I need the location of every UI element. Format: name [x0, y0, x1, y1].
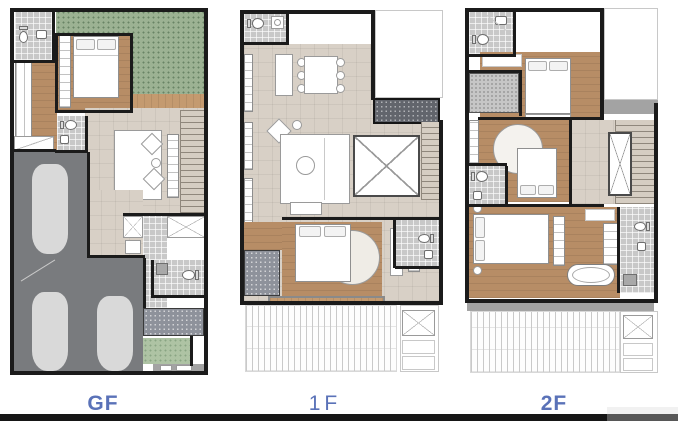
gf-counter [123, 216, 143, 238]
2f-sink-icon [473, 191, 482, 200]
1f-hall-wood [244, 222, 282, 250]
wall [467, 54, 516, 57]
wall [123, 213, 207, 216]
2f-dressing-mat [469, 73, 519, 113]
wall [600, 8, 604, 118]
wall [439, 120, 443, 305]
gf-car-icon [97, 296, 133, 371]
footer-light-tab [607, 407, 678, 414]
gf-toilet-tank-icon [195, 270, 199, 280]
wall [151, 260, 154, 298]
wall [519, 70, 522, 116]
2f-pergola-deck [470, 311, 620, 373]
wall [654, 103, 658, 303]
2f-toilet-tank-icon [646, 222, 650, 231]
wall [467, 70, 519, 73]
floor-label-gf: GF [78, 392, 128, 416]
wall [14, 149, 56, 152]
wall [465, 299, 658, 303]
2f-deck-edge [467, 303, 654, 311]
gf-garden-patch [143, 338, 191, 364]
wall [371, 10, 375, 100]
gf-toilet-icon [19, 31, 28, 43]
1f-toilet-icon [418, 234, 430, 243]
wall [282, 217, 439, 220]
wall [569, 120, 572, 204]
1f-toilet-tank-icon [247, 19, 251, 28]
gf-side-table-icon [151, 158, 161, 168]
gf-toilet-icon [182, 270, 195, 280]
gf-stove-icon [125, 240, 141, 254]
footer-black-bar [0, 414, 607, 421]
gf-toilet-tank-icon [19, 26, 28, 30]
wall [465, 8, 469, 303]
1f-sofa-icon [280, 134, 350, 204]
1f-void-x [353, 135, 420, 197]
1f-coffee-table-icon [296, 156, 315, 175]
wall [10, 371, 208, 375]
2f-bed-pillow [549, 61, 568, 71]
wall [240, 10, 375, 14]
1f-chaise-icon [290, 202, 322, 215]
gf-toilet-tank-icon [60, 121, 64, 129]
1f-bed-pillow [299, 226, 321, 237]
gf-sink-icon [36, 30, 47, 39]
floor-plan-1f [240, 10, 443, 375]
2f-skylight-x [623, 315, 653, 339]
wall [153, 295, 204, 298]
1f-deck-box [402, 356, 435, 370]
wall [617, 207, 620, 293]
2f-bed-pillow [475, 240, 485, 261]
1f-chair-icon [336, 84, 345, 93]
2f-shower-drain-icon [623, 274, 637, 286]
2f-deck-box [623, 343, 653, 356]
gf-shelf-unit [167, 134, 179, 198]
1f-open-terrace [375, 10, 443, 98]
2f-bed-pillow [528, 61, 547, 71]
gf-mat-area [143, 308, 204, 336]
wall [478, 117, 604, 120]
2f-bed-pillow [538, 185, 554, 195]
1f-skylight-x [402, 310, 435, 336]
wall [57, 33, 132, 36]
2f-bed-pillow [475, 217, 485, 238]
gf-shower-drain-icon [156, 263, 168, 275]
2f-toilet-tank-icon [472, 35, 476, 44]
2f-toilet-icon [634, 222, 646, 231]
wall [513, 10, 516, 54]
wall [87, 152, 90, 258]
floor-plan-gf [10, 8, 208, 375]
wall [55, 150, 88, 153]
1f-pergola-deck [245, 305, 397, 372]
1f-washer-drum-icon [274, 19, 281, 26]
gf-bed-pillow [97, 39, 116, 50]
2f-deck-box [623, 358, 653, 371]
wall [85, 116, 88, 152]
2f-sink-icon [637, 242, 646, 251]
2f-open-void [604, 8, 658, 100]
wall [130, 33, 133, 113]
2f-closet-strip [469, 120, 479, 164]
wall [10, 8, 14, 375]
1f-deck-box [402, 340, 435, 354]
wall [57, 110, 133, 113]
1f-bed-pillow [324, 226, 346, 237]
gf-stairs [180, 110, 204, 213]
2f-tv-unit [553, 216, 565, 266]
2f-bed-pillow [520, 185, 536, 195]
1f-closet-strip [244, 54, 253, 112]
wall [240, 301, 443, 305]
gf-bed-blanket-line [74, 55, 118, 56]
wall [244, 42, 289, 45]
1f-chair-icon [336, 71, 345, 80]
gf-closet-left [15, 62, 32, 146]
2f-void-x [608, 132, 632, 196]
wall [395, 266, 442, 269]
gf-counter [167, 216, 205, 238]
wall [10, 8, 208, 12]
floor-label-1f: 1F [300, 392, 350, 416]
2f-nightstand-icon [473, 266, 482, 275]
floor-label-2f: 2F [529, 392, 579, 416]
floor-plan-2f [465, 8, 658, 375]
2f-closet-box [585, 209, 615, 221]
wall [286, 10, 289, 44]
gf-sink-icon [60, 135, 69, 144]
wall [204, 8, 208, 375]
1f-bathroom-bottom [395, 218, 439, 268]
1f-chair-icon [336, 58, 345, 67]
gf-wardrobe [59, 35, 71, 108]
wall [393, 218, 396, 268]
1f-side-table-icon [292, 120, 302, 130]
1f-mat-area [244, 250, 280, 296]
2f-ledge [604, 100, 658, 114]
wall [467, 204, 604, 207]
wall [12, 60, 56, 63]
footer-gray-bar [607, 414, 678, 421]
1f-toilet-tank-icon [430, 234, 434, 243]
gf-car-icon [32, 164, 68, 254]
wall [143, 258, 146, 308]
gf-car-icon [32, 292, 68, 371]
2f-bathtub-inner [572, 267, 610, 283]
gf-deck-strip [130, 94, 204, 108]
floor-plans-page: GF 1F 2F [0, 0, 678, 423]
wall [55, 33, 58, 113]
1f-island-counter [275, 54, 293, 96]
wall [190, 336, 193, 366]
wall [467, 163, 507, 166]
2f-toilet-tank-icon [471, 172, 475, 181]
1f-sofa-back-line [324, 138, 325, 200]
1f-closet-strip [244, 122, 253, 170]
wall [465, 8, 604, 12]
1f-planter-mat [373, 98, 440, 124]
wall [505, 166, 508, 206]
1f-sink-icon [424, 250, 433, 259]
1f-stairs [421, 122, 439, 200]
wall [87, 255, 145, 258]
1f-dining-table-icon [304, 56, 338, 94]
wall [240, 10, 244, 305]
gf-bed-pillow [76, 39, 95, 50]
